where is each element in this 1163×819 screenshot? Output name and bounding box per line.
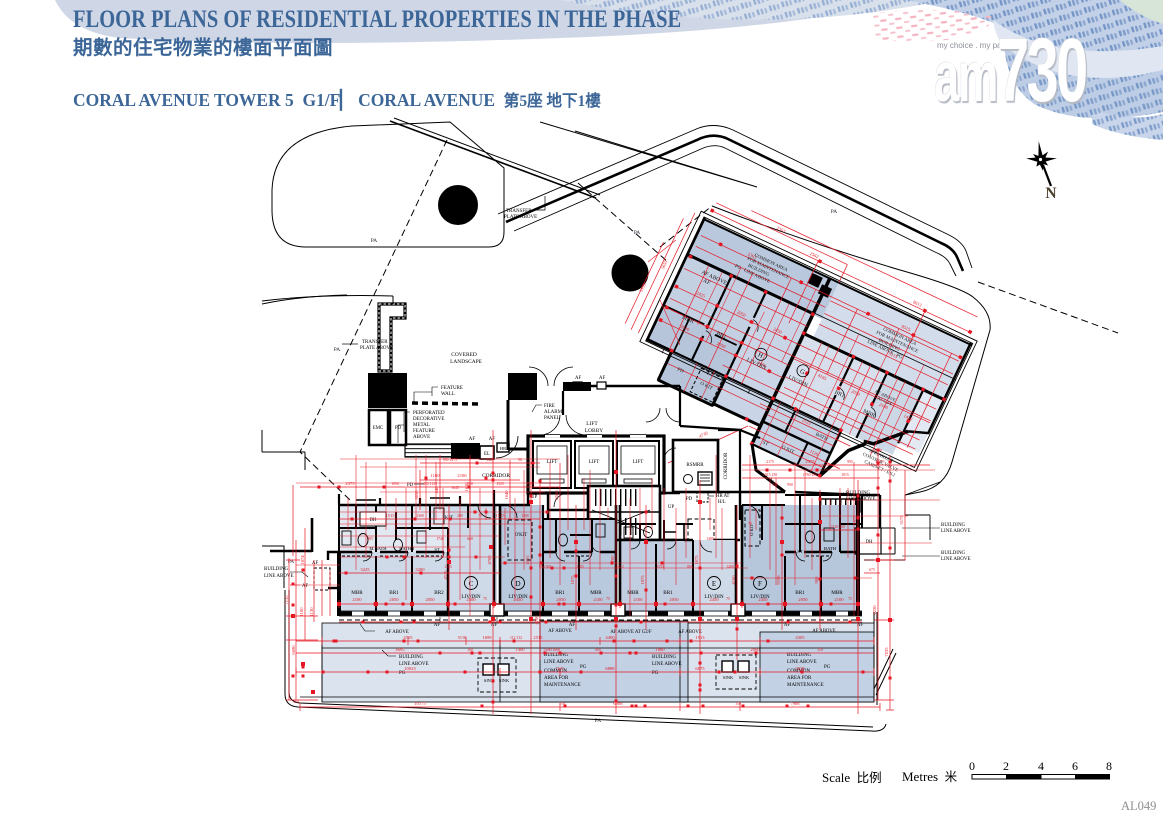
svg-text:2050: 2050 — [389, 597, 399, 602]
svg-text:MBR: MBR — [590, 590, 602, 596]
svg-text:SINK: SINK — [723, 675, 734, 680]
svg-text:2050: 2050 — [425, 597, 435, 602]
svg-text:BUILDING: BUILDING — [544, 653, 569, 658]
svg-text:AF: AF — [469, 437, 476, 442]
svg-text:PA: PA — [634, 230, 641, 236]
svg-text:2375: 2375 — [805, 459, 815, 464]
svg-text:800: 800 — [595, 648, 601, 652]
svg-text:6888: 6888 — [605, 666, 615, 671]
svg-text:AF ABOVE: AF ABOVE — [548, 629, 572, 634]
svg-text:LOBBY: LOBBY — [585, 428, 603, 434]
svg-text:PD: PD — [686, 497, 693, 502]
svg-text:75: 75 — [606, 597, 610, 601]
svg-text:4525: 4525 — [443, 570, 448, 580]
svg-text:1300: 1300 — [416, 514, 424, 518]
svg-text:TRANSFER: TRANSFER — [506, 209, 532, 214]
svg-text:112 112: 112 112 — [510, 636, 522, 640]
svg-text:PERFORATED: PERFORATED — [413, 411, 445, 416]
svg-text:660: 660 — [467, 537, 473, 541]
svg-text:2050: 2050 — [798, 597, 808, 602]
svg-text:1050: 1050 — [391, 482, 399, 486]
svg-text:E: E — [712, 580, 716, 588]
svg-text:3225: 3225 — [360, 567, 370, 572]
svg-text:8613: 8613 — [912, 299, 923, 308]
svg-text:2450: 2450 — [758, 597, 768, 602]
svg-text:BUILDING: BUILDING — [787, 653, 812, 658]
svg-text:1300: 1300 — [521, 514, 529, 518]
svg-text:2450: 2450 — [513, 597, 523, 602]
svg-text:4730: 4730 — [698, 430, 709, 439]
svg-text:1610: 1610 — [464, 482, 469, 492]
svg-text:BR1: BR1 — [389, 590, 399, 596]
svg-text:1425: 1425 — [486, 458, 494, 462]
svg-text:160: 160 — [467, 648, 473, 652]
svg-text:SINK: SINK — [739, 675, 750, 680]
svg-text:150: 150 — [735, 702, 741, 706]
svg-text:Metres 米: Metres 米 — [902, 769, 958, 784]
svg-text:6875: 6875 — [695, 666, 705, 671]
svg-text:RSMRR: RSMRR — [686, 463, 704, 468]
svg-text:4700: 4700 — [487, 555, 492, 565]
svg-text:DECORATIVE: DECORATIVE — [413, 417, 444, 422]
svg-text:2000: 2000 — [750, 647, 760, 652]
svg-text:1740: 1740 — [436, 537, 444, 541]
svg-text:PA: PA — [595, 718, 602, 724]
svg-text:O'KIT: O'KIT — [515, 533, 527, 538]
svg-text:440: 440 — [434, 486, 439, 494]
svg-text:AREA FOR: AREA FOR — [544, 676, 569, 681]
svg-text:75: 75 — [748, 522, 752, 526]
svg-text:2375: 2375 — [875, 459, 885, 464]
svg-text:BUILDING: BUILDING — [941, 523, 966, 528]
svg-text:1515: 1515 — [385, 513, 395, 518]
svg-text:AREA FOR: AREA FOR — [787, 676, 812, 681]
svg-text:AF: AF — [784, 623, 790, 628]
svg-text:55 58: 55 58 — [458, 636, 467, 640]
svg-text:950 300: 950 300 — [539, 565, 551, 569]
svg-text:1525: 1525 — [496, 482, 504, 486]
svg-text:4695: 4695 — [395, 647, 405, 652]
svg-text:AF: AF — [569, 623, 575, 628]
svg-text:2050: 2050 — [669, 597, 679, 602]
svg-text:EMC: EMC — [373, 426, 383, 431]
svg-text:7038: 7038 — [795, 666, 805, 671]
svg-text:1785: 1785 — [576, 565, 584, 569]
svg-text:LINE ABOVE: LINE ABOVE — [846, 497, 876, 502]
svg-text:BR1: BR1 — [663, 590, 673, 596]
svg-text:HR AT: HR AT — [716, 494, 730, 499]
svg-text:MAINTENANCE: MAINTENANCE — [544, 683, 581, 688]
svg-text:CORRIDOR: CORRIDOR — [723, 452, 729, 479]
svg-text:1400: 1400 — [726, 565, 734, 569]
svg-text:AF: AF — [599, 376, 605, 381]
svg-text:FEATURE: FEATURE — [413, 429, 435, 434]
svg-text:2050: 2050 — [556, 597, 566, 602]
svg-text:LIFT: LIFT — [586, 421, 598, 427]
svg-text:2100: 2100 — [352, 597, 362, 602]
svg-text:410 1135: 410 1135 — [423, 482, 437, 486]
svg-text:HR: HR — [500, 446, 507, 451]
svg-text:7035: 7035 — [884, 647, 889, 657]
svg-text:150: 150 — [817, 648, 823, 652]
svg-text:BUILDING: BUILDING — [264, 567, 289, 572]
svg-text:ST: ST — [797, 549, 803, 554]
svg-text:LINE ABOVE: LINE ABOVE — [941, 529, 971, 534]
svg-text:4160: 4160 — [731, 575, 736, 585]
svg-text:995: 995 — [847, 460, 853, 464]
svg-text:4: 4 — [1038, 759, 1044, 773]
svg-text:MBR: MBR — [627, 590, 639, 596]
svg-text:3175: 3175 — [899, 515, 904, 525]
svg-text:LINE ABOVE: LINE ABOVE — [787, 660, 817, 665]
svg-text:1100: 1100 — [299, 607, 304, 617]
svg-text:1120 100: 1120 100 — [831, 525, 845, 529]
svg-text:1913: 1913 — [695, 635, 705, 640]
svg-text:1135: 1135 — [444, 565, 452, 569]
svg-text:LANDSCAPE: LANDSCAPE — [450, 359, 482, 365]
svg-text:0: 0 — [969, 759, 975, 773]
svg-text:2562: 2562 — [809, 251, 820, 260]
svg-text:3050: 3050 — [414, 490, 419, 500]
svg-text:75: 75 — [848, 597, 852, 601]
svg-text:4700: 4700 — [610, 555, 615, 565]
svg-text:C: C — [469, 580, 474, 588]
svg-text:4525: 4525 — [525, 555, 530, 565]
svg-text:950 1275: 950 1275 — [443, 458, 457, 462]
svg-text:LIFT: LIFT — [633, 460, 644, 465]
svg-text:N: N — [1045, 185, 1056, 202]
svg-text:990: 990 — [787, 483, 793, 487]
svg-text:MAINTENANCE: MAINTENANCE — [787, 683, 824, 688]
svg-text:AF: AF — [575, 376, 581, 381]
svg-text:6888: 6888 — [613, 701, 623, 706]
svg-text:PA: PA — [831, 209, 838, 215]
svg-text:METAL: METAL — [413, 423, 430, 428]
svg-text:2100: 2100 — [457, 473, 467, 478]
svg-text:2: 2 — [1003, 759, 1009, 773]
svg-text:930: 930 — [772, 483, 778, 487]
svg-text:PG: PG — [580, 665, 587, 670]
svg-text:D: D — [515, 580, 520, 588]
svg-text:6: 6 — [1072, 759, 1078, 773]
svg-text:90: 90 — [518, 458, 522, 462]
svg-text:8: 8 — [1106, 759, 1112, 773]
svg-text:1600 1600: 1600 1600 — [544, 648, 560, 652]
svg-text:150: 150 — [559, 702, 565, 706]
svg-text:1880: 1880 — [655, 647, 665, 652]
svg-text:1874: 1874 — [300, 555, 305, 565]
svg-text:F: F — [758, 580, 762, 588]
svg-text:ABOVE: ABOVE — [413, 435, 430, 440]
svg-text:1075: 1075 — [570, 575, 575, 585]
svg-text:1699: 1699 — [482, 635, 492, 640]
svg-text:Scale 比例: Scale 比例 — [822, 770, 882, 785]
svg-text:COVERED: COVERED — [451, 352, 477, 358]
svg-text:900: 900 — [814, 576, 819, 584]
svg-text:FEATURE: FEATURE — [441, 386, 463, 391]
svg-text:1525: 1525 — [495, 513, 505, 518]
svg-text:LINE ABOVE: LINE ABOVE — [941, 557, 971, 562]
svg-text:PLATE ABOVE: PLATE ABOVE — [504, 215, 537, 220]
svg-text:AF: AF — [489, 437, 496, 442]
svg-text:PA: PA — [334, 347, 341, 353]
svg-text:LIFT: LIFT — [589, 460, 600, 465]
svg-text:1480: 1480 — [706, 537, 714, 541]
svg-text:BUILDING: BUILDING — [652, 655, 677, 660]
svg-text:BUILDING: BUILDING — [941, 551, 966, 556]
svg-text:4700: 4700 — [534, 615, 539, 625]
svg-text:MBR: MBR — [831, 590, 843, 596]
svg-text:3200: 3200 — [415, 567, 425, 572]
svg-text:TRANSFER: TRANSFER — [362, 340, 388, 345]
svg-text:1760 100: 1760 100 — [803, 473, 817, 477]
svg-text:PANEL: PANEL — [544, 416, 560, 421]
svg-text:7988: 7988 — [790, 701, 800, 706]
svg-text:150: 150 — [293, 700, 299, 704]
svg-text:BATH: BATH — [824, 546, 837, 551]
svg-text:2515: 2515 — [533, 635, 543, 640]
svg-text:1075: 1075 — [852, 515, 857, 525]
svg-text:10175: 10175 — [414, 701, 426, 706]
svg-text:BR2: BR2 — [434, 590, 444, 596]
svg-text:1015: 1015 — [841, 473, 849, 477]
svg-text:9198: 9198 — [776, 575, 781, 585]
svg-text:ALARM: ALARM — [544, 410, 563, 415]
svg-text:EL: EL — [484, 452, 490, 457]
svg-text:1645: 1645 — [451, 486, 459, 490]
svg-text:75: 75 — [478, 514, 482, 518]
svg-text:BR1: BR1 — [795, 590, 805, 596]
svg-text:4230: 4230 — [872, 605, 877, 615]
svg-text:75: 75 — [483, 597, 487, 601]
svg-text:5659: 5659 — [660, 259, 669, 270]
svg-text:1612: 1612 — [616, 565, 624, 569]
svg-text:SINK: SINK — [499, 678, 510, 683]
svg-text:75: 75 — [726, 597, 730, 601]
svg-text:BR1: BR1 — [555, 590, 565, 596]
svg-text:1300: 1300 — [526, 482, 534, 486]
svg-text:LINE ABOVE: LINE ABOVE — [652, 662, 682, 667]
svg-text:10025: 10025 — [404, 666, 416, 671]
svg-text:2500: 2500 — [466, 597, 476, 602]
svg-text:4400: 4400 — [605, 635, 615, 640]
svg-text:200: 200 — [457, 514, 463, 518]
svg-text:1553: 1553 — [656, 565, 664, 569]
svg-text:2375: 2375 — [345, 481, 355, 486]
svg-text:1075: 1075 — [694, 555, 699, 565]
svg-text:2100: 2100 — [593, 597, 603, 602]
svg-text:PA: PA — [371, 238, 378, 244]
svg-text:985: 985 — [367, 537, 373, 541]
svg-text:DH: DH — [866, 540, 873, 545]
svg-text:2175: 2175 — [766, 460, 774, 464]
svg-text:H/L: H/L — [718, 500, 726, 505]
svg-text:PG: PG — [824, 665, 831, 670]
svg-text:1130: 1130 — [309, 607, 314, 617]
svg-text:BUILDING: BUILDING — [399, 655, 424, 660]
svg-text:800: 800 — [687, 565, 693, 569]
svg-text:4705: 4705 — [403, 635, 413, 640]
svg-text:7135: 7135 — [284, 595, 289, 605]
svg-text:2450: 2450 — [709, 597, 719, 602]
svg-text:FIRE: FIRE — [544, 404, 555, 409]
svg-text:AF ABOVE AT G2/F: AF ABOVE AT G2/F — [610, 630, 652, 635]
svg-text:AF ABOVE: AF ABOVE — [812, 629, 836, 634]
svg-text:AL049: AL049 — [1121, 799, 1156, 813]
svg-text:6690: 6690 — [291, 645, 296, 655]
svg-text:675: 675 — [869, 568, 875, 572]
svg-text:LINE ABOVE: LINE ABOVE — [544, 660, 574, 665]
svg-text:75 75: 75 75 — [556, 667, 565, 671]
svg-text:1100: 1100 — [430, 473, 440, 478]
svg-text:2100: 2100 — [633, 597, 643, 602]
svg-text:1075: 1075 — [640, 575, 645, 585]
svg-text:AF: AF — [491, 623, 497, 628]
svg-text:1400: 1400 — [515, 647, 525, 652]
svg-text:MBR: MBR — [351, 590, 363, 596]
svg-text:8560: 8560 — [554, 490, 559, 500]
svg-text:AF: AF — [434, 623, 440, 628]
svg-text:PLATE ABOVE: PLATE ABOVE — [360, 346, 393, 351]
svg-text:UP: UP — [668, 505, 674, 510]
svg-text:WALL: WALL — [441, 392, 455, 397]
svg-text:1015 150: 1015 150 — [763, 473, 777, 477]
svg-text:4305: 4305 — [795, 635, 805, 640]
svg-text:2100: 2100 — [834, 597, 844, 602]
svg-text:LIFT: LIFT — [547, 460, 558, 465]
svg-text:1640: 1640 — [504, 490, 509, 500]
